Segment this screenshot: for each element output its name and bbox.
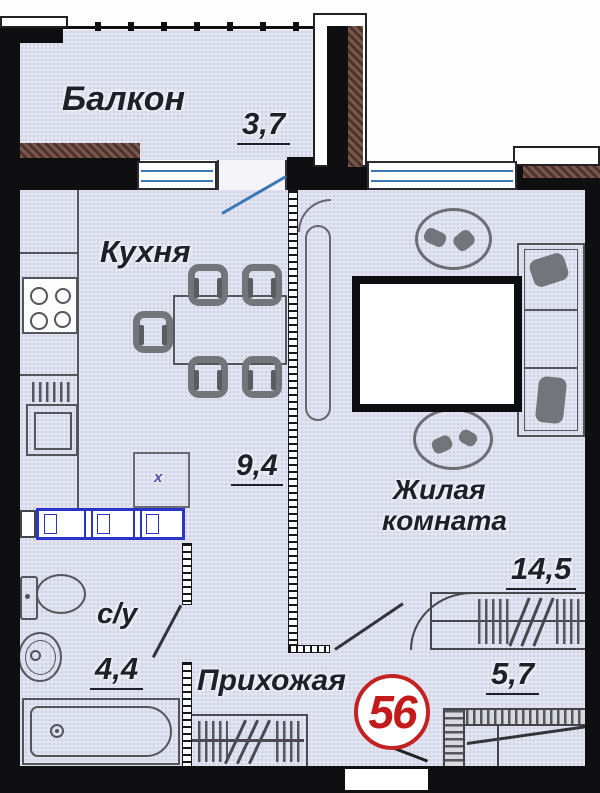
kitchen-sink-basin — [34, 412, 72, 450]
closet-blue — [36, 508, 185, 540]
washer-mark: х — [154, 470, 162, 486]
round-furniture-bottom — [413, 408, 493, 470]
living-label-line2: комната — [382, 506, 507, 535]
wall-bottom-left — [0, 766, 345, 793]
entry-cabinet-line — [497, 726, 499, 768]
dish-rack — [32, 382, 74, 402]
partition-bath-top — [182, 543, 192, 605]
living-window — [367, 161, 517, 190]
hallway-area: 5,7 — [486, 658, 539, 695]
wall-top-left-corner — [0, 28, 63, 43]
stove-burner — [54, 311, 71, 328]
closet-divider — [133, 510, 142, 538]
slide-wardrobe-section — [556, 599, 582, 644]
railing-post — [260, 22, 266, 31]
slide-wardrobe-section — [478, 599, 510, 644]
living-label-line1: Жилая — [393, 475, 486, 504]
railing-post — [227, 22, 233, 31]
toilet-bowl — [36, 574, 86, 614]
railing-post — [161, 22, 167, 31]
railing-post — [95, 22, 101, 31]
toilet-dot — [25, 594, 30, 599]
bath-sink-drain — [30, 650, 41, 661]
closet-end-panel — [20, 510, 36, 538]
wardrobe-item — [535, 376, 568, 425]
chair — [188, 264, 228, 306]
ledge-top-right — [513, 146, 600, 166]
bathroom-area: 4,4 — [90, 653, 143, 690]
void-square — [352, 276, 522, 412]
wall-left — [0, 28, 20, 791]
stove-burner — [55, 288, 71, 304]
partition-bath-bottom — [182, 662, 192, 768]
balcony-side-hatch — [348, 26, 363, 167]
ledge-top-left — [0, 16, 68, 28]
tall-cabinet — [305, 225, 331, 421]
stove-burner — [30, 287, 48, 305]
wall-exterior-hatch — [523, 164, 600, 178]
partition-living-corner — [288, 645, 330, 653]
balcony-side-wall — [327, 26, 348, 167]
wall-top-right — [523, 178, 585, 190]
kitchen-counter-edge — [77, 190, 79, 508]
wardrobe-shelf — [524, 367, 578, 369]
balcony-area: 3,7 — [237, 108, 290, 145]
closet-cell-line — [97, 514, 110, 534]
wall-bottom-right — [428, 766, 600, 793]
kitchen-counter-divider — [20, 374, 78, 376]
balcony-label: Балкон — [62, 82, 185, 118]
closet-cell-line — [146, 514, 159, 534]
apartment-number: 56 — [368, 685, 415, 739]
railing-post — [128, 22, 134, 31]
closet-divider — [84, 510, 93, 538]
chair — [242, 356, 282, 398]
wardrobe-shelf — [524, 309, 578, 311]
entry-cabinet-side — [443, 708, 465, 768]
hallway-label: Прихожая — [197, 665, 346, 697]
apartment-number-badge: 56 — [354, 674, 430, 750]
kitchen-window — [137, 161, 217, 190]
wall-balcony-kitchen — [20, 158, 140, 190]
balcony-door-gap — [217, 160, 287, 190]
kitchen-area: 9,4 — [231, 450, 283, 486]
living-area: 14,5 — [506, 553, 576, 590]
railing-post — [293, 22, 299, 31]
chair — [242, 264, 282, 306]
partition-living — [288, 190, 298, 645]
floor-plan: х — [0, 0, 600, 793]
wall-exterior-hatch — [20, 143, 140, 158]
window-glass — [371, 170, 513, 182]
wall-right — [585, 178, 600, 791]
railing-post — [194, 22, 200, 31]
stove-burner — [30, 312, 48, 330]
hall-wardrobe-rod — [192, 739, 304, 742]
kitchen-label: Кухня — [100, 236, 191, 269]
bathtub-drain-dot — [55, 729, 59, 733]
window-glass — [141, 170, 213, 182]
chair — [188, 356, 228, 398]
kitchen-counter-divider — [20, 252, 78, 254]
bathroom-label: с/у — [97, 599, 137, 629]
closet-cell-line — [44, 514, 57, 534]
entrance-threshold — [345, 766, 428, 793]
chair — [133, 311, 173, 353]
